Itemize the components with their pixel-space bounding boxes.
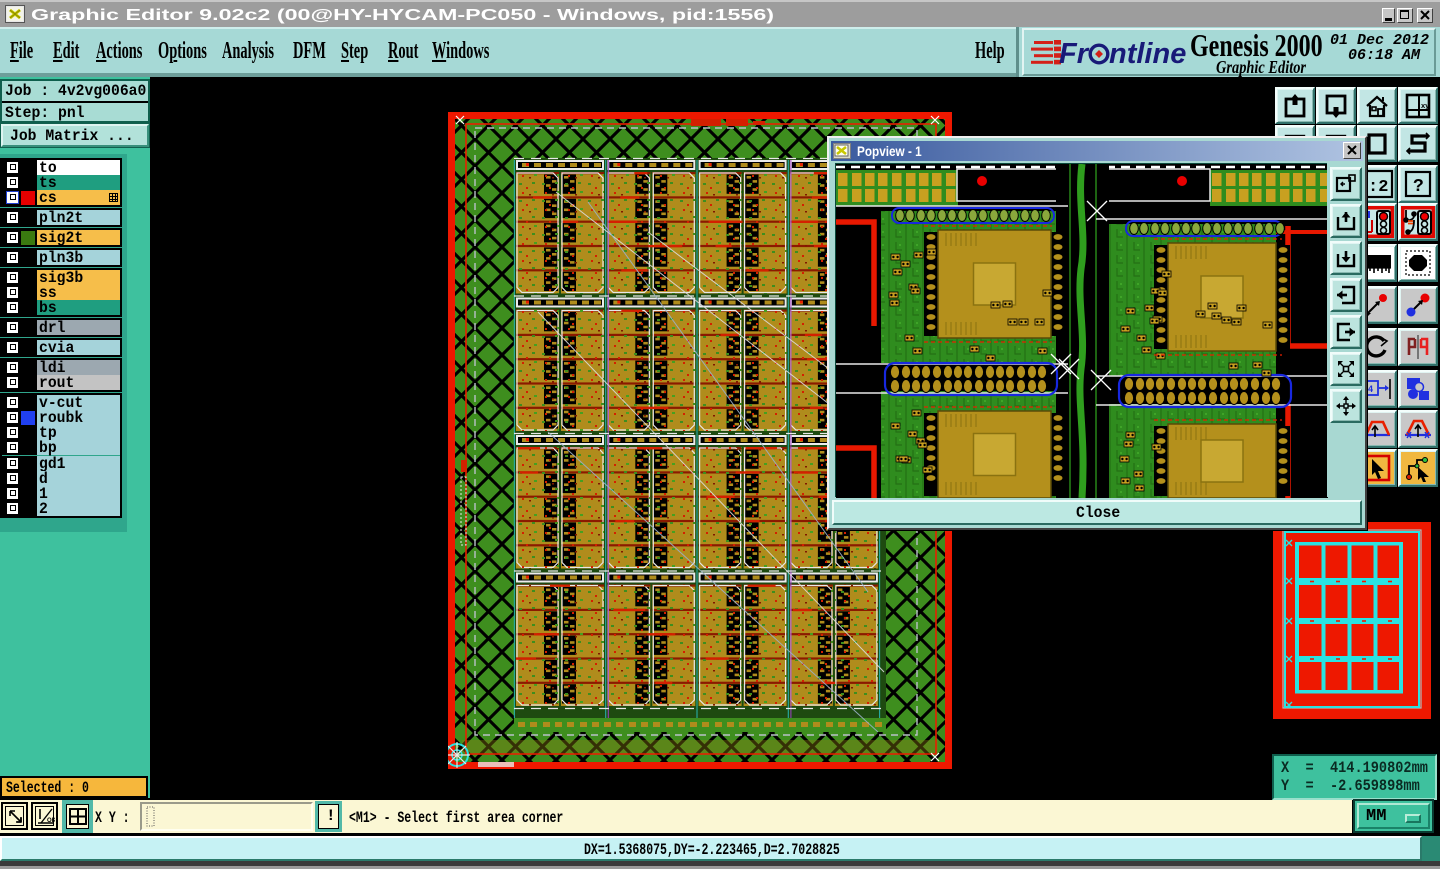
svg-text:xy: xy <box>1421 101 1430 110</box>
svg-text:ntline: ntline <box>1109 38 1186 70</box>
svg-text::2: :2 <box>1368 178 1388 197</box>
svg-text:?: ? <box>1413 177 1424 197</box>
svg-text:4: 4 <box>1368 384 1373 394</box>
svg-text:OK: OK <box>47 818 55 824</box>
svg-text:Fr: Fr <box>1059 38 1090 70</box>
